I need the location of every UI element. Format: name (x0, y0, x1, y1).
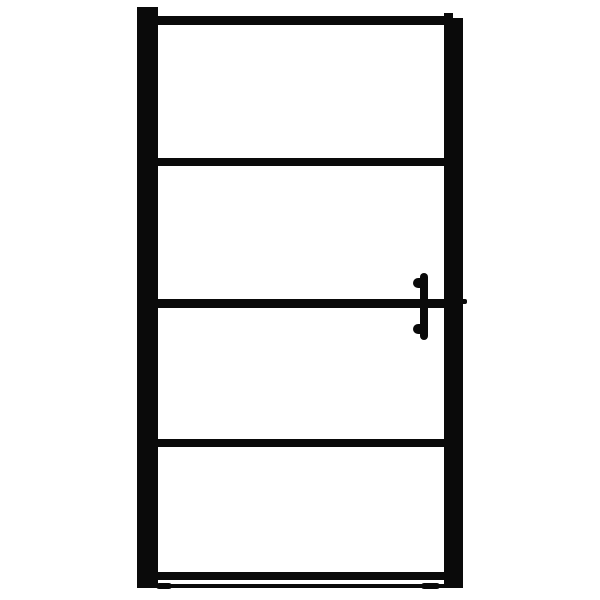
top-rail (158, 16, 444, 25)
right-frame-post (444, 18, 463, 588)
left-frame-post (137, 7, 158, 588)
bottom-seal-end-left (156, 583, 172, 589)
right-post-top-cap (444, 13, 453, 20)
bottom-seal-end-right (421, 583, 440, 589)
product-photo-shower-door (0, 0, 600, 600)
lower-mid-rail (158, 439, 444, 447)
upper-mid-rail (158, 158, 444, 166)
glass-panel-1 (158, 25, 444, 158)
glass-panel-2 (158, 166, 444, 299)
glass-panel-4 (158, 447, 444, 572)
handle-mount-top (413, 278, 422, 288)
handle-mount-bottom (413, 324, 422, 334)
hinge-tab (463, 299, 467, 304)
bottom-rail (158, 572, 444, 580)
bottom-seal-strip (151, 584, 449, 588)
glass-panel-3 (158, 308, 444, 439)
middle-rail (158, 299, 444, 308)
